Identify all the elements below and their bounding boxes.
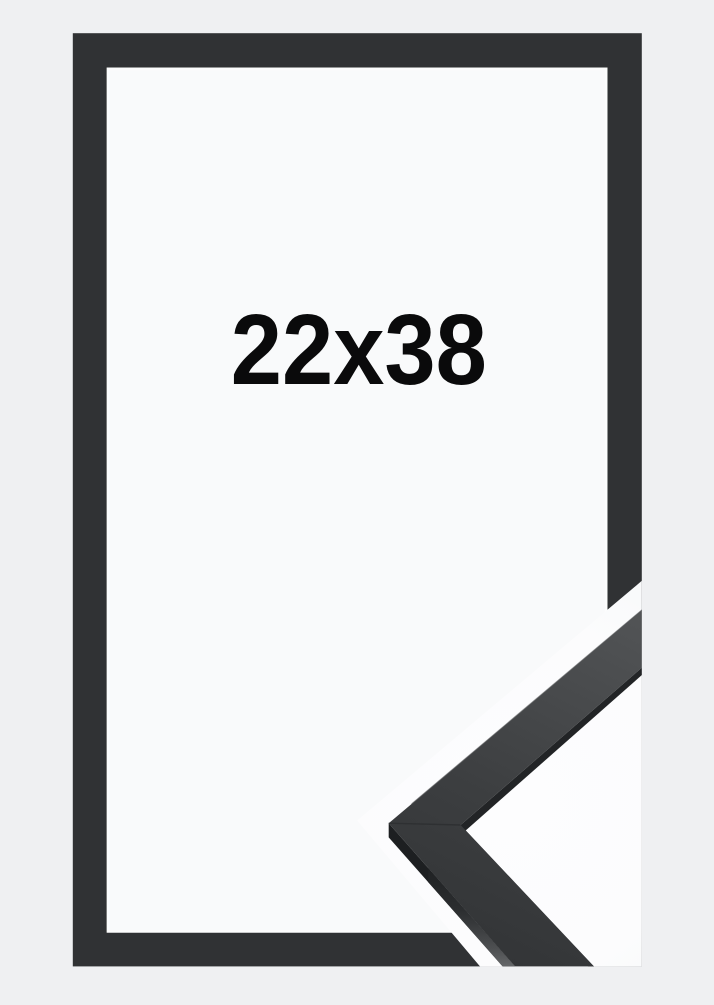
svg-text:22x38: 22x38 <box>231 294 487 406</box>
